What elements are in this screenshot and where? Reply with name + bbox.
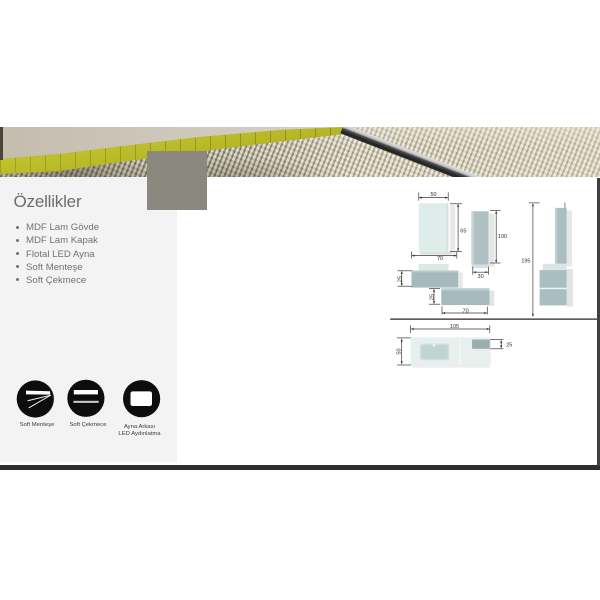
svg-text:105: 105 <box>450 324 459 330</box>
svg-text:195: 195 <box>521 259 530 265</box>
svg-text:70: 70 <box>463 309 469 315</box>
svg-text:25: 25 <box>397 276 403 282</box>
svg-text:100: 100 <box>498 234 507 240</box>
svg-text:50: 50 <box>430 192 436 198</box>
svg-text:25: 25 <box>429 294 435 300</box>
svg-text:65: 65 <box>460 229 466 235</box>
svg-text:25: 25 <box>506 343 512 349</box>
svg-text:30: 30 <box>478 274 484 280</box>
svg-text:50: 50 <box>397 348 403 354</box>
svg-text:70: 70 <box>437 256 443 262</box>
